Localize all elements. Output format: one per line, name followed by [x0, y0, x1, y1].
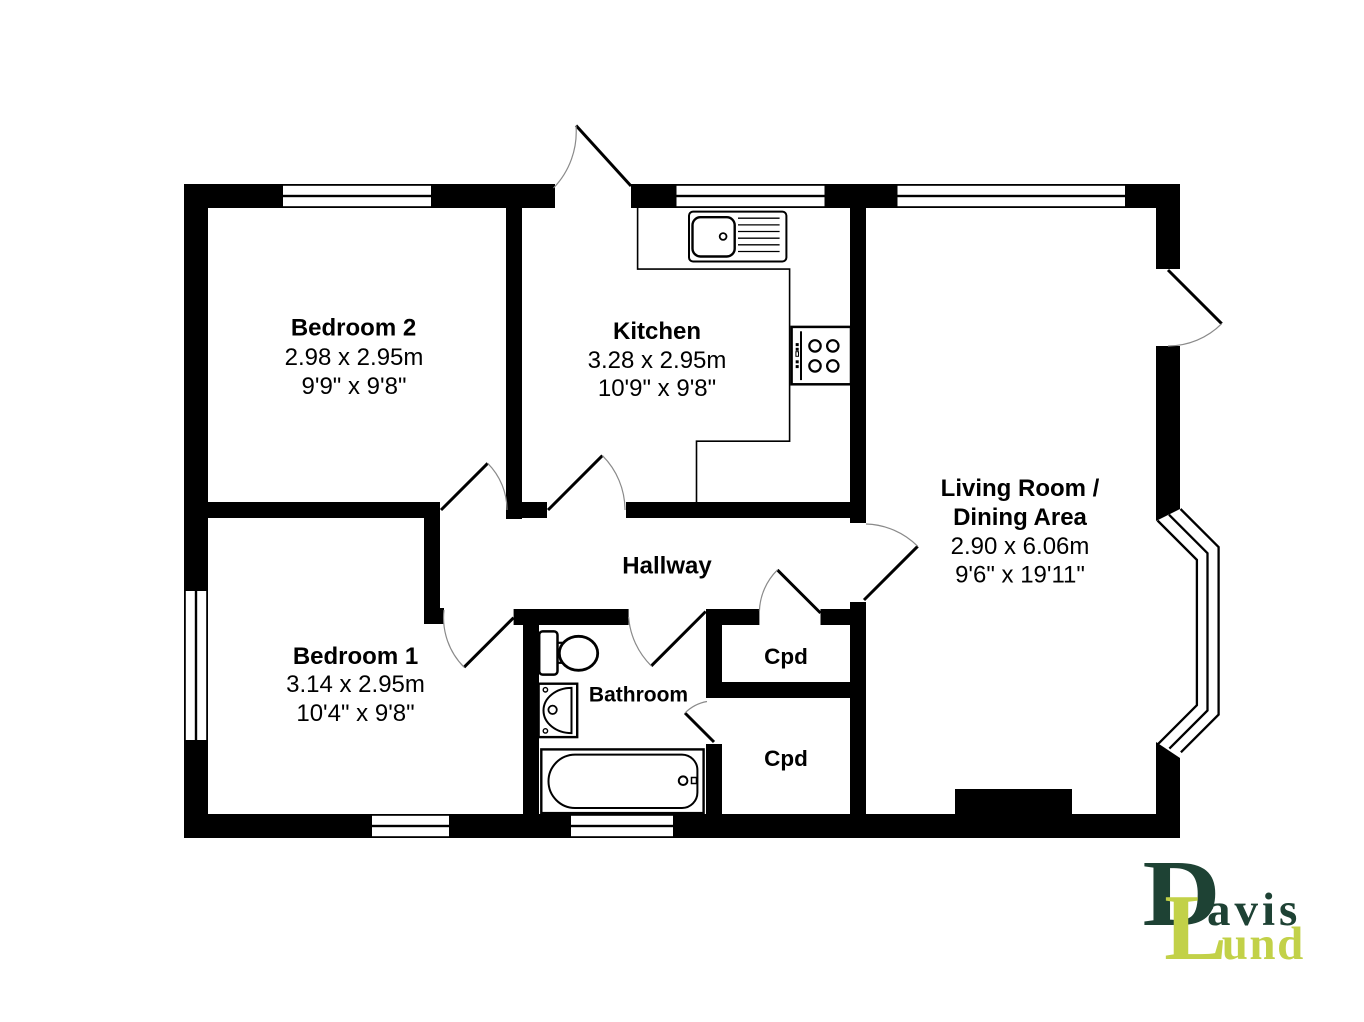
svg-text:und: und: [1222, 918, 1305, 970]
svg-text:3.28 x 2.95m: 3.28 x 2.95m: [588, 347, 727, 374]
svg-text:2.98 x 2.95m: 2.98 x 2.95m: [285, 344, 424, 371]
svg-text:Cpd: Cpd: [764, 746, 808, 771]
svg-text:Kitchen: Kitchen: [613, 318, 701, 345]
svg-text:9'9" x 9'8": 9'9" x 9'8": [302, 373, 407, 400]
svg-text:Bathroom: Bathroom: [589, 684, 688, 707]
svg-text:Cpd: Cpd: [764, 644, 808, 669]
svg-text:Dining Area: Dining Area: [953, 504, 1087, 531]
svg-text:2.90 x 6.06m: 2.90 x 6.06m: [951, 533, 1090, 560]
svg-text:9'6" x 19'11": 9'6" x 19'11": [955, 562, 1085, 589]
svg-text:Hallway: Hallway: [622, 553, 712, 580]
svg-text:Bedroom 1: Bedroom 1: [293, 643, 418, 670]
svg-text:Bedroom 2: Bedroom 2: [291, 315, 416, 342]
svg-text:Living Room /: Living Room /: [941, 475, 1100, 502]
svg-text:10'9" x 9'8": 10'9" x 9'8": [598, 375, 716, 402]
svg-text:10'4" x 9'8": 10'4" x 9'8": [296, 700, 414, 727]
svg-text:3.14 x 2.95m: 3.14 x 2.95m: [286, 671, 425, 698]
